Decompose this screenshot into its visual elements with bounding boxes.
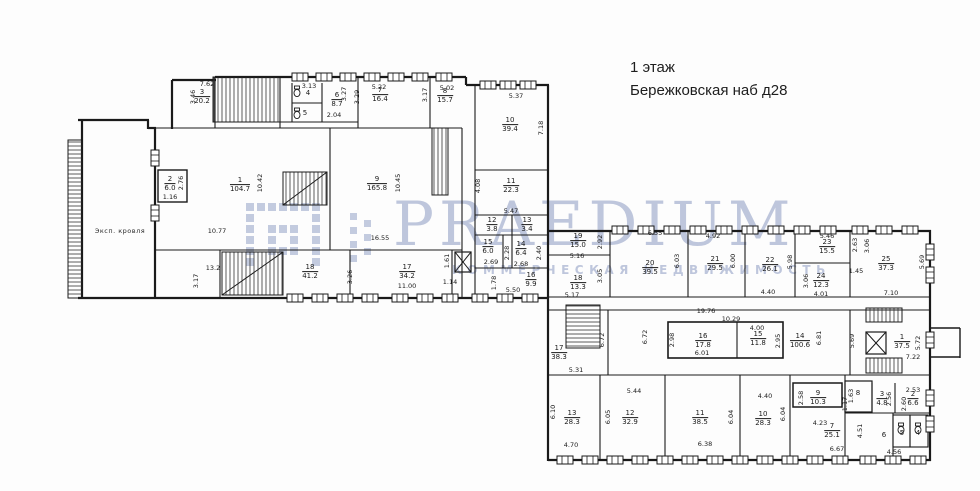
room-label: 1104.7	[230, 176, 250, 194]
room-label: 1734.2	[399, 263, 415, 281]
dim-label: 3.06	[863, 239, 871, 253]
room-label: 1617.8	[695, 332, 711, 350]
room-label: 2537.3	[878, 255, 894, 273]
dim-label: 4.56	[887, 448, 901, 456]
dim-label: 1.16	[163, 193, 177, 201]
room-label: 2226.1	[762, 256, 778, 274]
dim-label: 10.29	[722, 315, 741, 323]
room-number-label: 4	[306, 89, 310, 97]
dim-label: 11.00	[398, 282, 417, 290]
dim-label: 1.78	[490, 276, 498, 290]
dim-label: 7.18	[537, 121, 545, 135]
dim-label: 3.17	[192, 274, 200, 288]
room-label: 1232.9	[622, 409, 638, 427]
room-label: 169.9	[525, 271, 536, 289]
address-label: Бережковская наб д28	[630, 80, 787, 103]
room-label: 9165.8	[367, 175, 387, 193]
dim-label: 6.55	[648, 229, 662, 237]
dim-label: 4.40	[761, 288, 775, 296]
room-label: 2315.5	[819, 238, 835, 256]
room-label: 26.0	[164, 175, 175, 193]
roof-label: Эксп. кровля	[95, 227, 145, 235]
dim-label: 4.51	[856, 424, 864, 438]
room-number-label: 8	[856, 389, 860, 397]
dim-label: 3.06	[802, 274, 810, 288]
dim-label: 7.62	[200, 80, 214, 88]
dim-label: 4.08	[474, 179, 482, 193]
dim-label: 4.23	[813, 419, 827, 427]
dim-label: 1.14	[443, 278, 457, 286]
room-label: 1328.3	[564, 409, 580, 427]
room-number-label: 5	[900, 429, 904, 437]
dim-label: 4.70	[564, 441, 578, 449]
room-label: 910.3	[810, 389, 826, 407]
dim-label: 6.04	[779, 407, 787, 421]
dim-label: 2.58	[797, 391, 805, 405]
dim-label: 5.37	[509, 92, 523, 100]
room-label: 123.8	[486, 216, 497, 234]
dim-label: 6.72	[598, 333, 606, 347]
dim-label: 6.03	[673, 254, 681, 268]
room-number-label: 6	[882, 431, 886, 439]
room-label: 133.4	[521, 216, 532, 234]
dim-label: 2.95	[774, 334, 782, 348]
dim-label: 2.63	[851, 238, 859, 252]
dim-label: 5.44	[627, 387, 641, 395]
room-label: 14100.6	[790, 332, 810, 350]
room-label: 1915.0	[570, 232, 586, 250]
dim-label: 5.17	[565, 291, 579, 299]
dim-label: 5.72	[914, 336, 922, 350]
room-label: 2129.5	[707, 255, 723, 273]
dim-label: 16.55	[371, 234, 390, 242]
floorplan-labels: 320.268.7716.4815.71039.41122.3123.8133.…	[0, 0, 980, 491]
dim-label: 5.69	[918, 255, 926, 269]
room-label: 2412.3	[813, 272, 829, 290]
room-label: 2039.5	[642, 259, 658, 277]
dim-label: 3.26	[346, 270, 354, 284]
dim-label: 10.42	[256, 174, 264, 193]
room-label: 1122.3	[503, 177, 519, 195]
dim-label: 6.67	[830, 445, 844, 453]
floor-label: 1 этаж	[630, 57, 787, 80]
dim-label: 2.28	[503, 246, 511, 260]
room-label: 146.4	[515, 240, 526, 258]
dim-label: 5.31	[569, 366, 583, 374]
dim-label: 5.02	[440, 84, 454, 92]
dim-label: 5.22	[372, 83, 386, 91]
room-label: 1813.3	[570, 274, 586, 292]
room-label: 1138.5	[692, 409, 708, 427]
dim-label: 5.50	[506, 286, 520, 294]
room-label: 1738.3	[551, 344, 567, 362]
dim-label: 5.98	[786, 255, 794, 269]
dim-label: 19.76	[697, 307, 716, 315]
dim-label: 6.10	[549, 405, 557, 419]
room-label: 1841.2	[302, 263, 318, 281]
dim-label: 10.77	[208, 227, 227, 235]
dim-label: 3.29	[353, 90, 361, 104]
dim-label: 5.46	[820, 232, 834, 240]
drawing-title: 1 этаж Бережковская наб д28	[630, 57, 787, 102]
room-number-label: 5	[303, 109, 307, 117]
dim-label: 2.04	[327, 111, 341, 119]
dim-label: 2.56	[885, 392, 893, 406]
room-label: 137.5	[894, 333, 910, 351]
dim-label: 6.05	[604, 410, 612, 424]
dim-label: 2.69	[484, 258, 498, 266]
floorplan-canvas: PRAEDIUM КОММЕРЧЕСКАЯ НЕДВИЖИМОСТЬ 320.2…	[0, 0, 980, 491]
dim-label: 6.81	[815, 331, 823, 345]
dim-label: 6.04	[727, 410, 735, 424]
dim-label: 4.01	[814, 290, 828, 298]
dim-label: 4.92	[706, 232, 720, 240]
dim-label: 6.00	[729, 254, 737, 268]
dim-label: 5.69	[848, 334, 856, 348]
dim-label: 3.05	[596, 269, 604, 283]
room-label: 156.0	[482, 238, 493, 256]
dim-label: 2.98	[668, 333, 676, 347]
dim-label: 2.60	[900, 397, 908, 411]
dim-label: 3.13	[302, 82, 316, 90]
room-label: 1039.4	[502, 116, 518, 134]
dim-label: 5.47	[504, 207, 518, 215]
dim-label: 6.72	[641, 330, 649, 344]
dim-label: 3.46	[189, 90, 197, 104]
dim-label: 5.16	[570, 252, 584, 260]
room-label: 1028.3	[755, 410, 771, 428]
room-label: 1511.8	[750, 330, 766, 348]
dim-label: 3.17	[421, 88, 429, 102]
dim-label: 7.22	[906, 353, 920, 361]
dim-label: 2.68	[514, 260, 528, 268]
dim-label: 2.76	[177, 176, 185, 190]
dim-label: 6.01	[695, 349, 709, 357]
dim-label: 7.10	[884, 289, 898, 297]
dim-label: 4.40	[758, 392, 772, 400]
dim-label: 13.2	[206, 264, 220, 272]
dim-label: 4.00	[750, 324, 764, 332]
dim-label: 1.45	[849, 267, 863, 275]
dim-label: 6.38	[698, 440, 712, 448]
room-number-label: 4	[916, 429, 920, 437]
dim-label: 2.53	[906, 386, 920, 394]
dim-label: 1.61	[443, 254, 451, 268]
dim-label: 2.40	[535, 246, 543, 260]
dim-label: 10.45	[394, 174, 402, 193]
dim-label: 2.92	[596, 235, 604, 249]
dim-label: 3.27	[340, 87, 348, 101]
dim-label: 1.63	[847, 389, 855, 403]
